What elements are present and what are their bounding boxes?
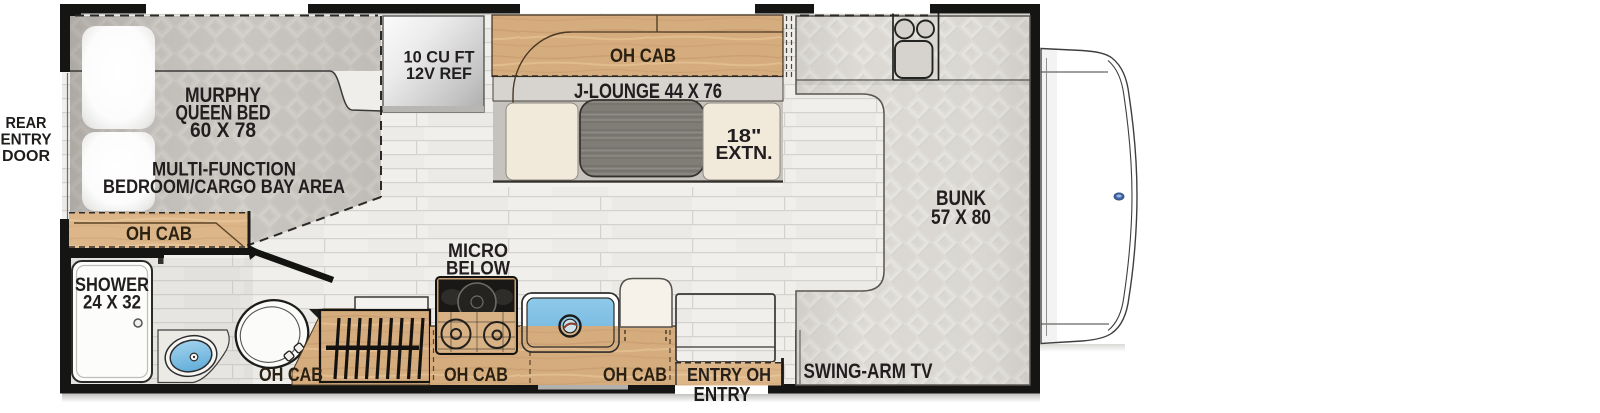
svg-text:OH CAB: OH CAB — [126, 224, 192, 245]
svg-text:OH CAB: OH CAB — [259, 365, 323, 386]
svg-text:10 CU FT: 10 CU FT — [404, 49, 475, 67]
svg-text:12V REF: 12V REF — [406, 65, 472, 83]
svg-text:ENTRY: ENTRY — [1, 132, 52, 149]
svg-text:OH CAB: OH CAB — [603, 365, 667, 386]
svg-text:24 X 32: 24 X 32 — [83, 293, 141, 314]
svg-text:60 X 78: 60 X 78 — [190, 119, 256, 142]
svg-text:SWING-ARM TV: SWING-ARM TV — [804, 359, 934, 383]
svg-text:J-LOUNGE 44 X 76: J-LOUNGE 44 X 76 — [574, 79, 722, 103]
svg-text:ENTRY OH: ENTRY OH — [687, 365, 771, 385]
svg-text:EXTN.: EXTN. — [716, 142, 773, 163]
svg-text:BEDROOM/CARGO BAY AREA: BEDROOM/CARGO BAY AREA — [103, 176, 345, 198]
svg-text:BELOW: BELOW — [446, 258, 511, 280]
svg-text:REAR: REAR — [6, 115, 47, 132]
svg-text:OH CAB: OH CAB — [610, 46, 676, 67]
svg-text:ENTRY: ENTRY — [694, 383, 751, 406]
svg-text:OH CAB: OH CAB — [444, 365, 508, 386]
svg-text:57 X 80: 57 X 80 — [931, 206, 991, 229]
svg-text:DOOR: DOOR — [2, 148, 50, 165]
